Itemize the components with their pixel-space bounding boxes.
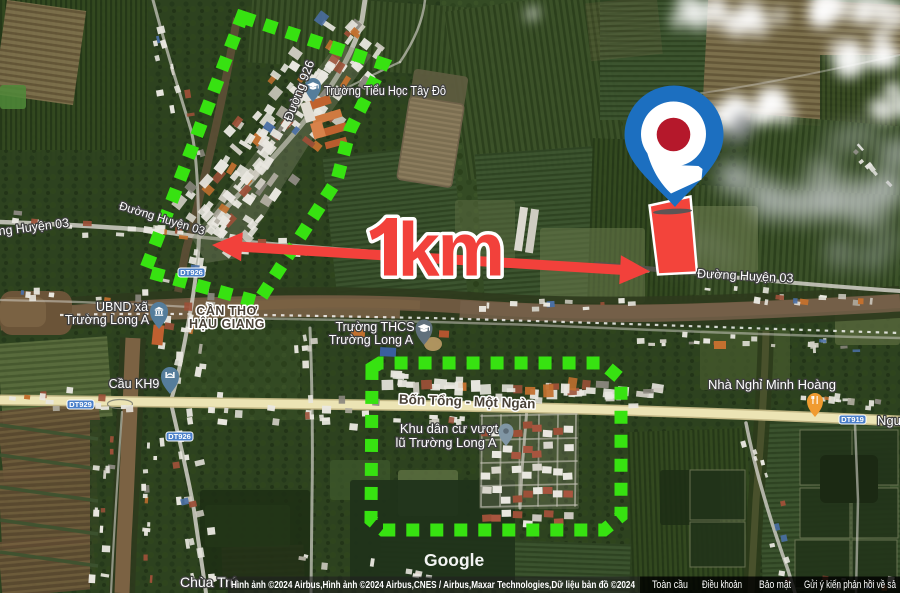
svg-text:Khu dân cư vượt: Khu dân cư vượt [400, 421, 499, 436]
svg-text:DT929: DT929 [69, 400, 92, 409]
svg-text:CẦN THƠ: CẦN THƠ [196, 303, 257, 318]
svg-text:UBND xã: UBND xã [96, 300, 148, 314]
svg-text:Trường Long A: Trường Long A [329, 333, 414, 347]
svg-text:m: m [438, 208, 506, 293]
svg-text:k: k [398, 208, 441, 293]
svg-text:Cầu KH9: Cầu KH9 [109, 377, 160, 391]
svg-text:DT926: DT926 [168, 432, 191, 441]
svg-text:Nguy: Nguy [877, 413, 900, 428]
svg-text:lũ Trường Long A: lũ Trường Long A [395, 435, 496, 450]
svg-text:Hình ảnh ©2024 Airbus,Hình ảnh: Hình ảnh ©2024 Airbus,Hình ảnh ©2024 Air… [231, 579, 635, 591]
svg-text:DT926: DT926 [180, 268, 203, 277]
svg-text:Trường THCS: Trường THCS [335, 320, 414, 334]
svg-text:Gửi ý kiến phản hồi về sả: Gửi ý kiến phản hồi về sả [804, 579, 897, 591]
svg-text:Google: Google [424, 550, 485, 570]
svg-text:Trường Long A: Trường Long A [65, 313, 150, 327]
svg-text:Điều khoản: Điều khoản [702, 579, 742, 591]
svg-text:DT919: DT919 [841, 415, 864, 424]
svg-text:Bảo mật: Bảo mật [759, 579, 791, 591]
svg-text:Nhà Nghỉ Minh Hoàng: Nhà Nghỉ Minh Hoàng [708, 377, 836, 392]
svg-text:Trường Tiểu Học Tây Đô: Trường Tiểu Học Tây Đô [324, 83, 446, 98]
svg-text:HẬU GIANG: HẬU GIANG [189, 316, 265, 331]
svg-text:Toàn cầu: Toàn cầu [652, 579, 688, 591]
